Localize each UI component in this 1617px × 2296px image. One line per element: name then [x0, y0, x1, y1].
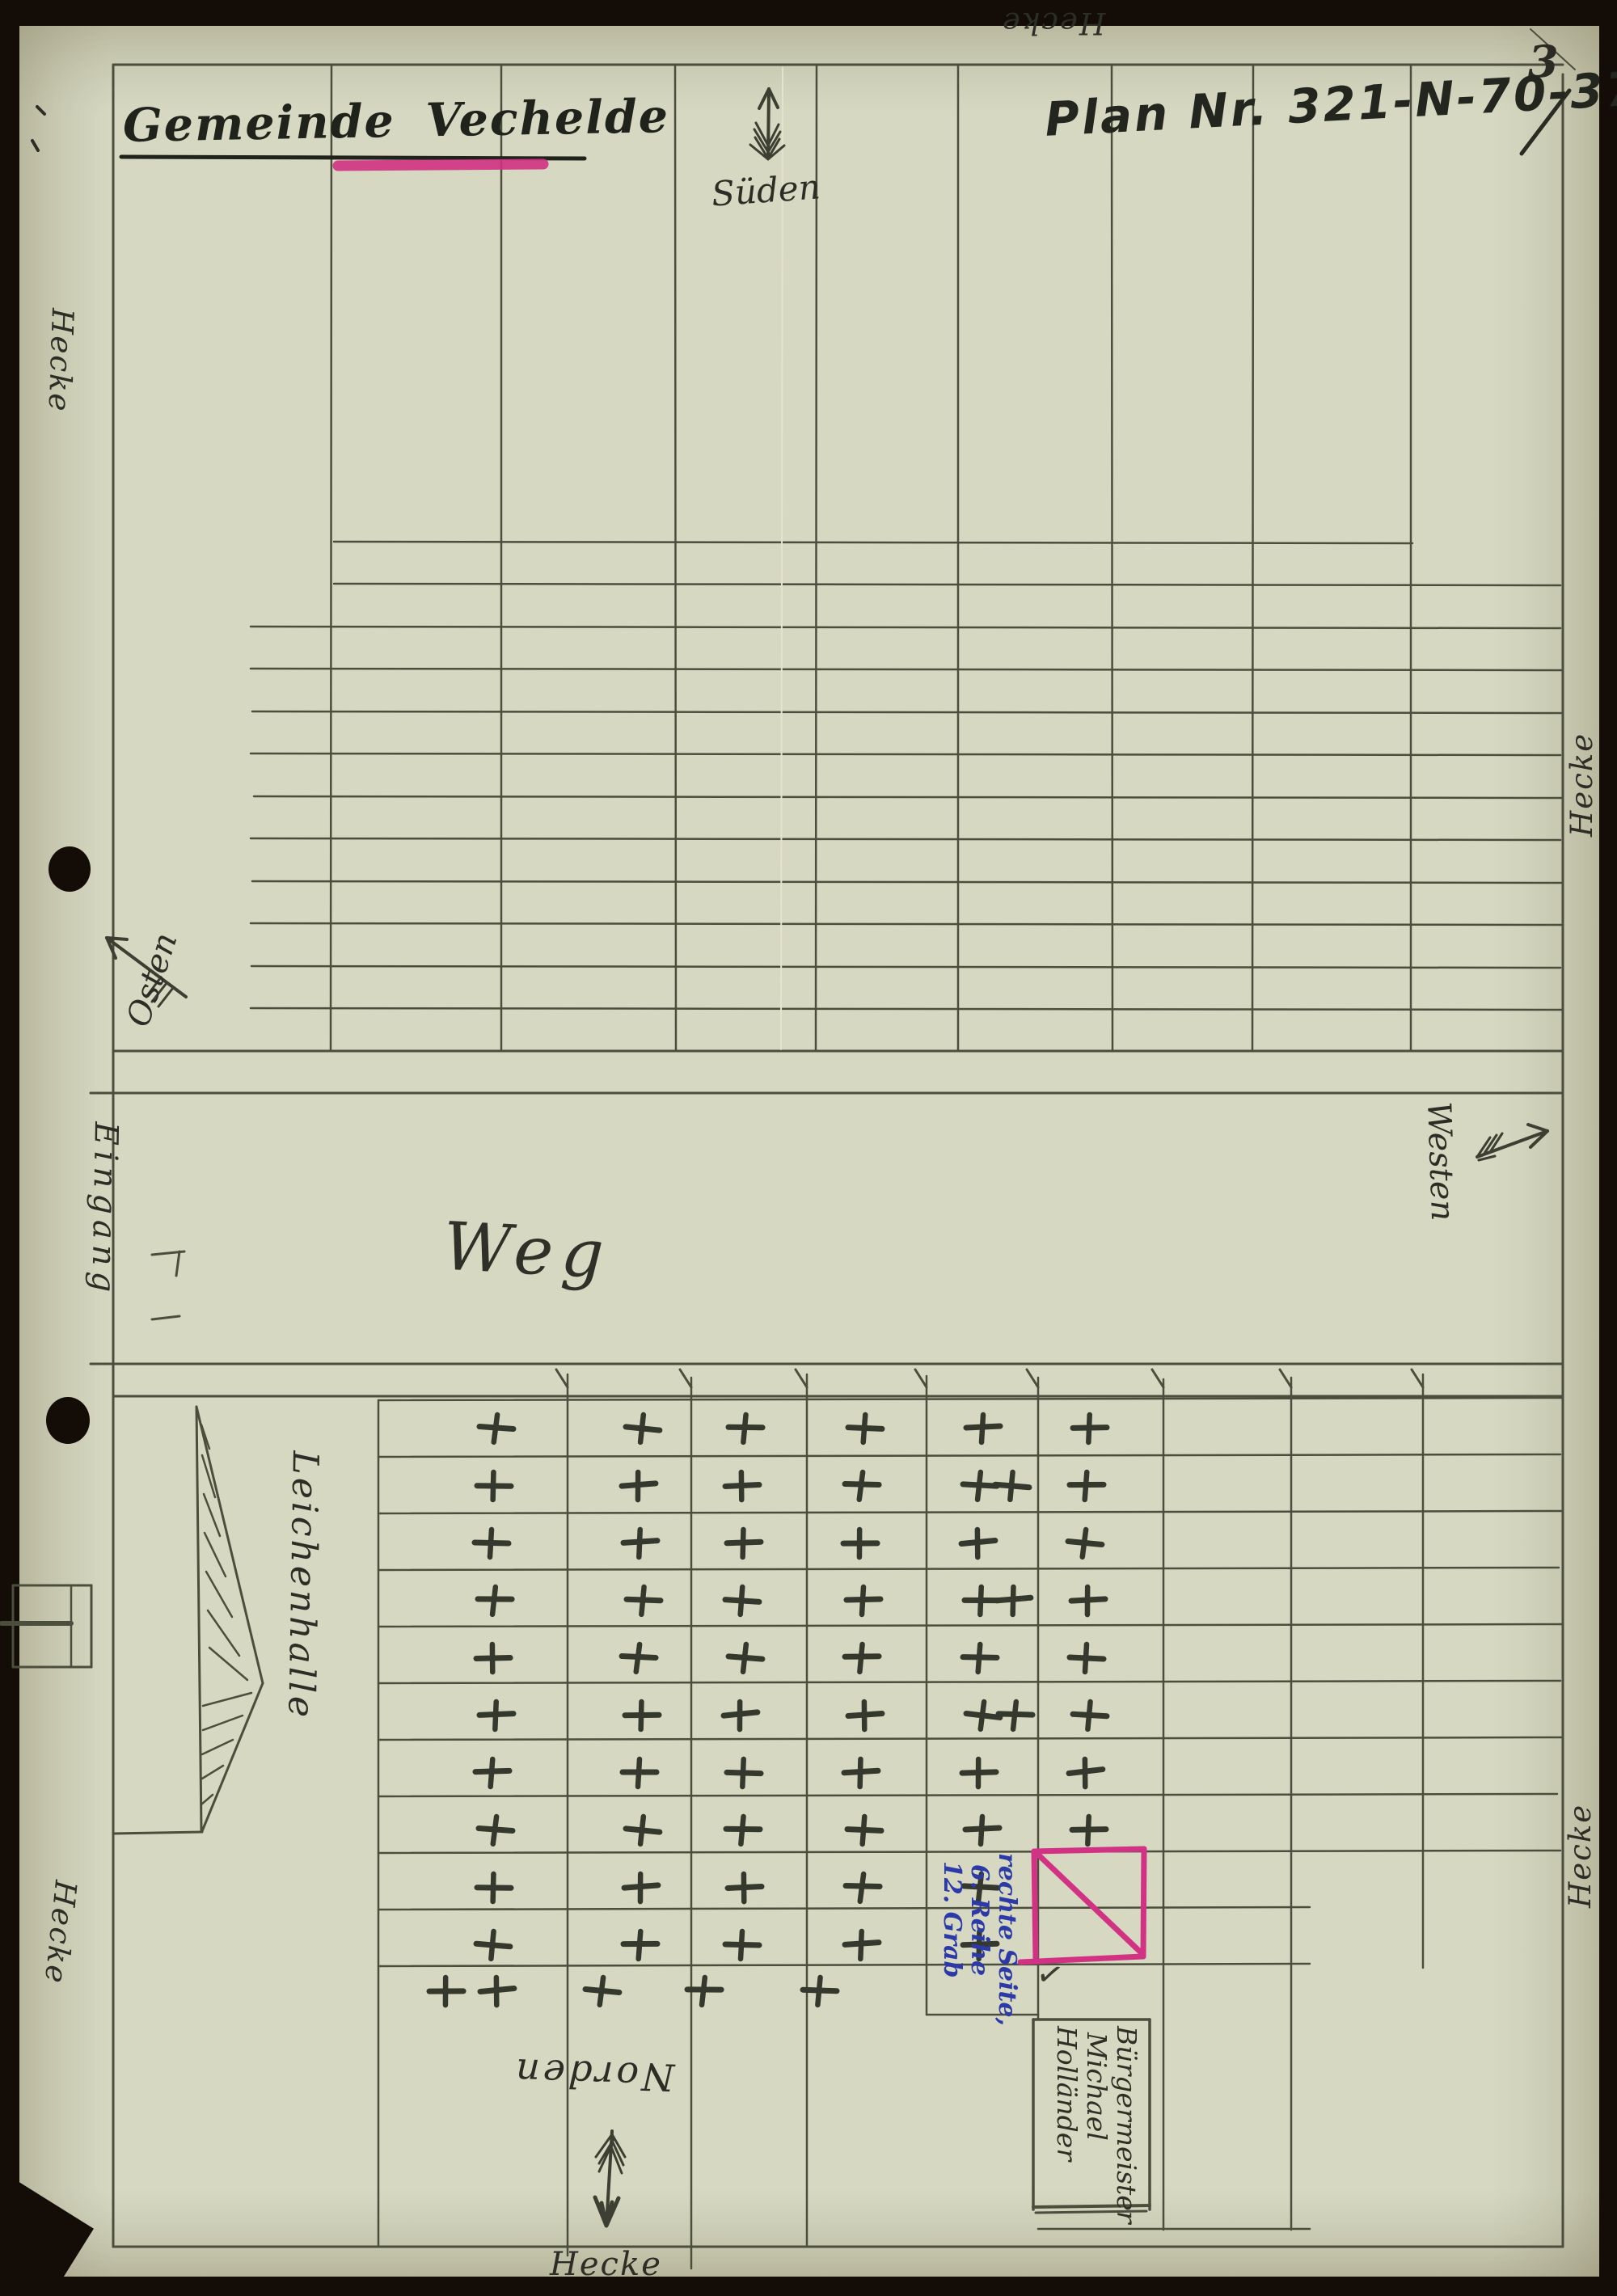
grave-note-line3: 12. Grab [938, 1853, 965, 2026]
name-box-text: Bürgermeister Michael Holländer [1052, 2026, 1142, 2224]
grid-lines [2, 29, 1575, 2269]
grave-note-line1: rechte Seite, [993, 1853, 1020, 2026]
hedge-label-left-upper: Hecke [43, 308, 78, 413]
south-arrow-icon [750, 89, 784, 159]
west-arrow-icon [1477, 1125, 1547, 1160]
hedge-label-right-lower: Hecke [1565, 1804, 1597, 1908]
name-box-line3: Holländer [1052, 2026, 1082, 2224]
scanned-cemetery-plan-page: Hecke 3 Gemeinde Vechelde Plan Nr. 321-N… [0, 0, 1617, 2296]
plan-drawing [0, 0, 1617, 2296]
grave-note-line2: 6. Reihe [965, 1853, 993, 2026]
pink-underline [338, 164, 543, 166]
page-title: Gemeinde Vechelde [123, 92, 670, 150]
path-label: Weg [441, 1213, 614, 1291]
hedge-label-top: Hecke [1001, 6, 1105, 38]
hedge-label-bottom: Hecke [550, 2247, 662, 2281]
entrance-label: Eingang [86, 1121, 123, 1298]
compass-west-label: Westen [1421, 1101, 1459, 1222]
north-arrow-icon [595, 2131, 625, 2226]
name-box-line1: Bürgermeister [1112, 2026, 1142, 2224]
compass-north-label: Norden [512, 2053, 675, 2097]
compass-south-label: Süden [711, 169, 821, 212]
name-box-line2: Michael [1082, 2026, 1112, 2224]
mortuary-label: Leichenhalle [281, 1450, 323, 1720]
hedge-label-right-upper: Hecke [1567, 732, 1598, 837]
grave-location-note: rechte Seite, 6. Reihe 12. Grab [938, 1853, 1020, 2026]
